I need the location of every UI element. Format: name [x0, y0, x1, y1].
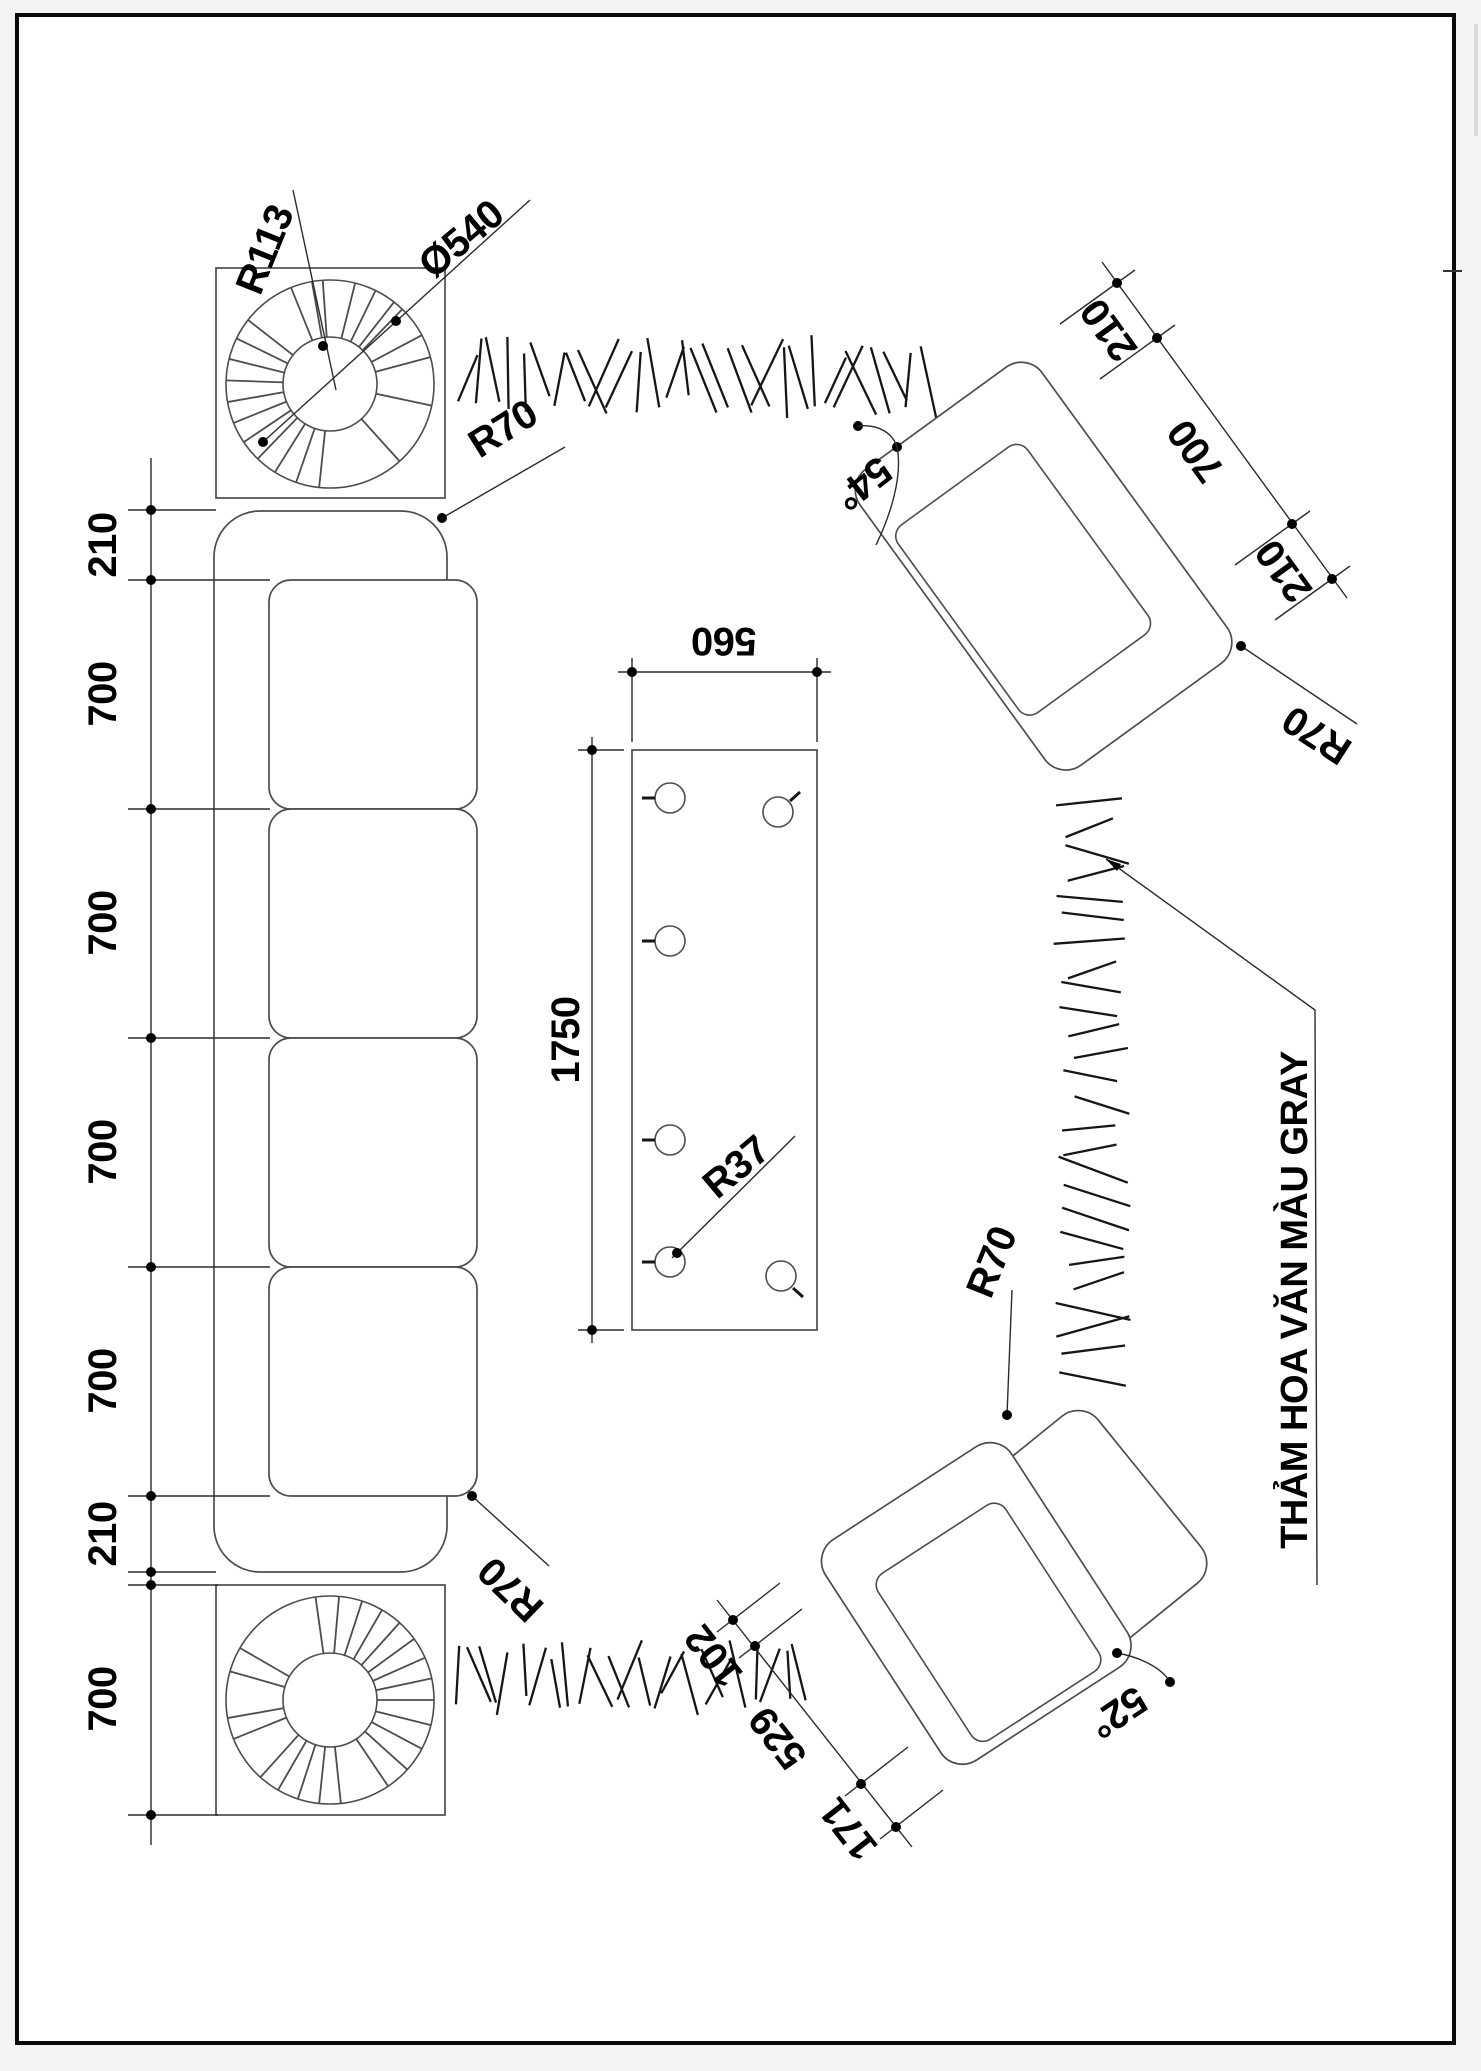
dimension-label: 700 — [81, 1119, 125, 1184]
dimension-label: 560 — [691, 619, 756, 663]
leader-dot — [391, 316, 401, 326]
hatch-mark — [507, 337, 508, 409]
dimension-dot — [812, 667, 822, 677]
leader-dot — [318, 341, 328, 351]
dimension-label: 700 — [81, 661, 125, 726]
dimension-dot — [627, 667, 637, 677]
leader-dot — [1236, 641, 1246, 651]
sofa-cushion-3 — [269, 1038, 477, 1267]
leader-dot — [258, 437, 268, 447]
dimension-dot — [146, 1810, 156, 1820]
dimension-label: 1750 — [544, 997, 588, 1084]
dimension-dot — [146, 1567, 156, 1577]
coffee-table — [632, 750, 817, 1330]
dimension-dot — [1327, 574, 1337, 584]
dimension-dot — [856, 1779, 866, 1789]
dimension-dot — [146, 1033, 156, 1043]
floorplan-drawing: Ø540 R113 R70 R70 — [0, 0, 1481, 2071]
angle-dot — [1165, 1677, 1175, 1687]
dimension-dot — [1152, 333, 1162, 343]
dimension-dot — [587, 1325, 597, 1335]
dimension-dot — [728, 1615, 738, 1625]
dimension-label: 210 — [81, 1501, 125, 1566]
dimension-dot — [146, 804, 156, 814]
sofa-cushion-4 — [269, 1267, 477, 1496]
dimension-dot — [1112, 278, 1122, 288]
leader-dot — [467, 1491, 477, 1501]
sofa — [214, 511, 477, 1572]
leader-dot — [1002, 1410, 1012, 1420]
dimension-dot — [146, 1580, 156, 1590]
dimension-dot — [146, 1262, 156, 1272]
dimension-label: 700 — [81, 890, 125, 955]
cad-canvas: Ø540 R113 R70 R70 — [0, 0, 1481, 2071]
dimension-dot — [146, 575, 156, 585]
leader-dot — [437, 513, 447, 523]
scrollbar-hint — [1474, 24, 1478, 136]
sofa-cushion-2 — [269, 809, 477, 1038]
side-table-top-square — [216, 268, 445, 498]
dimension-dot — [1287, 519, 1297, 529]
dimension-dot — [146, 1491, 156, 1501]
leader-dot — [672, 1248, 682, 1258]
side-table-bottom — [216, 1585, 445, 1815]
dimension-label: 700 — [81, 1666, 125, 1731]
angle-dot — [1112, 1648, 1122, 1658]
dimension-label: 700 — [81, 1348, 125, 1413]
dimension-dot — [891, 1822, 901, 1832]
coffee-table-top — [632, 750, 817, 1330]
dimension-dot — [750, 1641, 760, 1651]
carpet-label: THẢM HOA VĂN MÀU GRAY — [1272, 1051, 1316, 1549]
dimension-dot — [587, 745, 597, 755]
sofa-cushion-1 — [269, 580, 477, 809]
dimension-dot — [146, 505, 156, 515]
dimension-label: 210 — [81, 512, 125, 577]
